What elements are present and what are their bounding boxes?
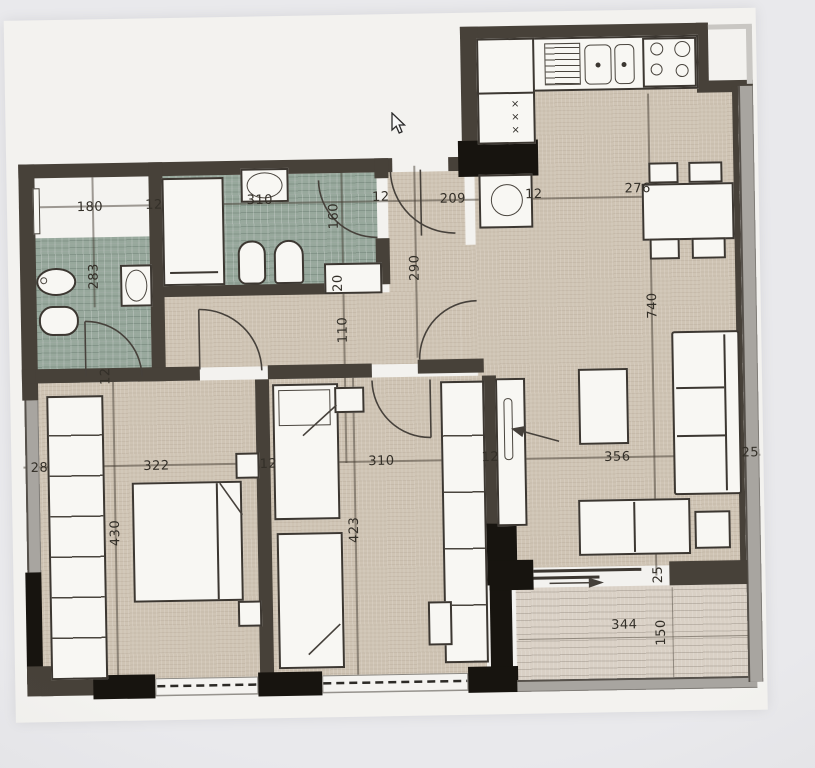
sliding-direction-arrow-line: [550, 583, 594, 584]
dim-entry-depth: 290: [407, 254, 422, 281]
window-sill-1: [155, 694, 258, 696]
dim-wall-top-3: 12: [525, 187, 543, 202]
bedroom2-door-leaf: [430, 379, 431, 437]
window-glazing-2: [323, 681, 467, 684]
leader-arrow-head: [513, 427, 525, 436]
dim-niche-depth: 20: [331, 274, 346, 292]
dim-wall-top-2: 12: [372, 190, 390, 205]
bedroom2-door-arc: [372, 379, 431, 438]
dim-bathroom1-depth: 283: [86, 263, 101, 290]
dim-wall-mid-2: 12: [481, 450, 499, 465]
bed1-fold-line: [220, 483, 243, 515]
dim-living-width: 356: [604, 449, 631, 464]
bedroom1-door-leaf: [199, 310, 200, 370]
dim-bedroom2-depth: 423: [347, 517, 362, 544]
screenshot-stage: × × ×: [0, 0, 815, 768]
dim-kitchen-width: 276: [624, 181, 651, 196]
dim-closet-column: 28: [31, 461, 49, 476]
dim-wall-top-1: 12: [145, 198, 163, 213]
dim-bathroom2-width: 310: [247, 193, 274, 208]
bed2a-fold-line: [302, 405, 337, 436]
window-glazing-1: [157, 685, 257, 687]
bedroom1-door-arc: [199, 308, 262, 371]
dim-bathroom1-width: 180: [77, 200, 104, 215]
dim-bedroom1-depth: 430: [108, 520, 123, 547]
bathroom1-door-leaf: [85, 321, 86, 376]
dim-right-wall: 25: [741, 445, 759, 460]
dim-balcony-depth: 150: [654, 619, 669, 646]
mouse-cursor-icon: [390, 112, 410, 136]
window-sill-2: [322, 690, 468, 693]
dim-bathroom2-door: 160: [326, 203, 341, 230]
sliding-direction-arrow-head: [589, 579, 601, 587]
bathroom1-door-arc: [85, 321, 142, 378]
dim-hallway-width: 110: [335, 317, 350, 344]
dim-living-depth: 740: [645, 292, 660, 319]
dim-bedroom1-width: 322: [143, 459, 170, 474]
dim-bathroom1-wall: 12: [98, 367, 113, 385]
dim-wall-mid-1: 12: [260, 457, 278, 472]
dim-balcony-width: 344: [611, 617, 638, 632]
entrance-door-leaf: [420, 170, 421, 236]
hallway-door-arc: [419, 301, 478, 360]
dim-entry-width: 209: [440, 191, 467, 206]
dim-bedroom2-width: 310: [368, 454, 395, 469]
dim-balcony-offset: 25: [651, 566, 666, 584]
leader-arrow-line: [521, 430, 559, 442]
bed2b-fold-line: [308, 624, 341, 655]
